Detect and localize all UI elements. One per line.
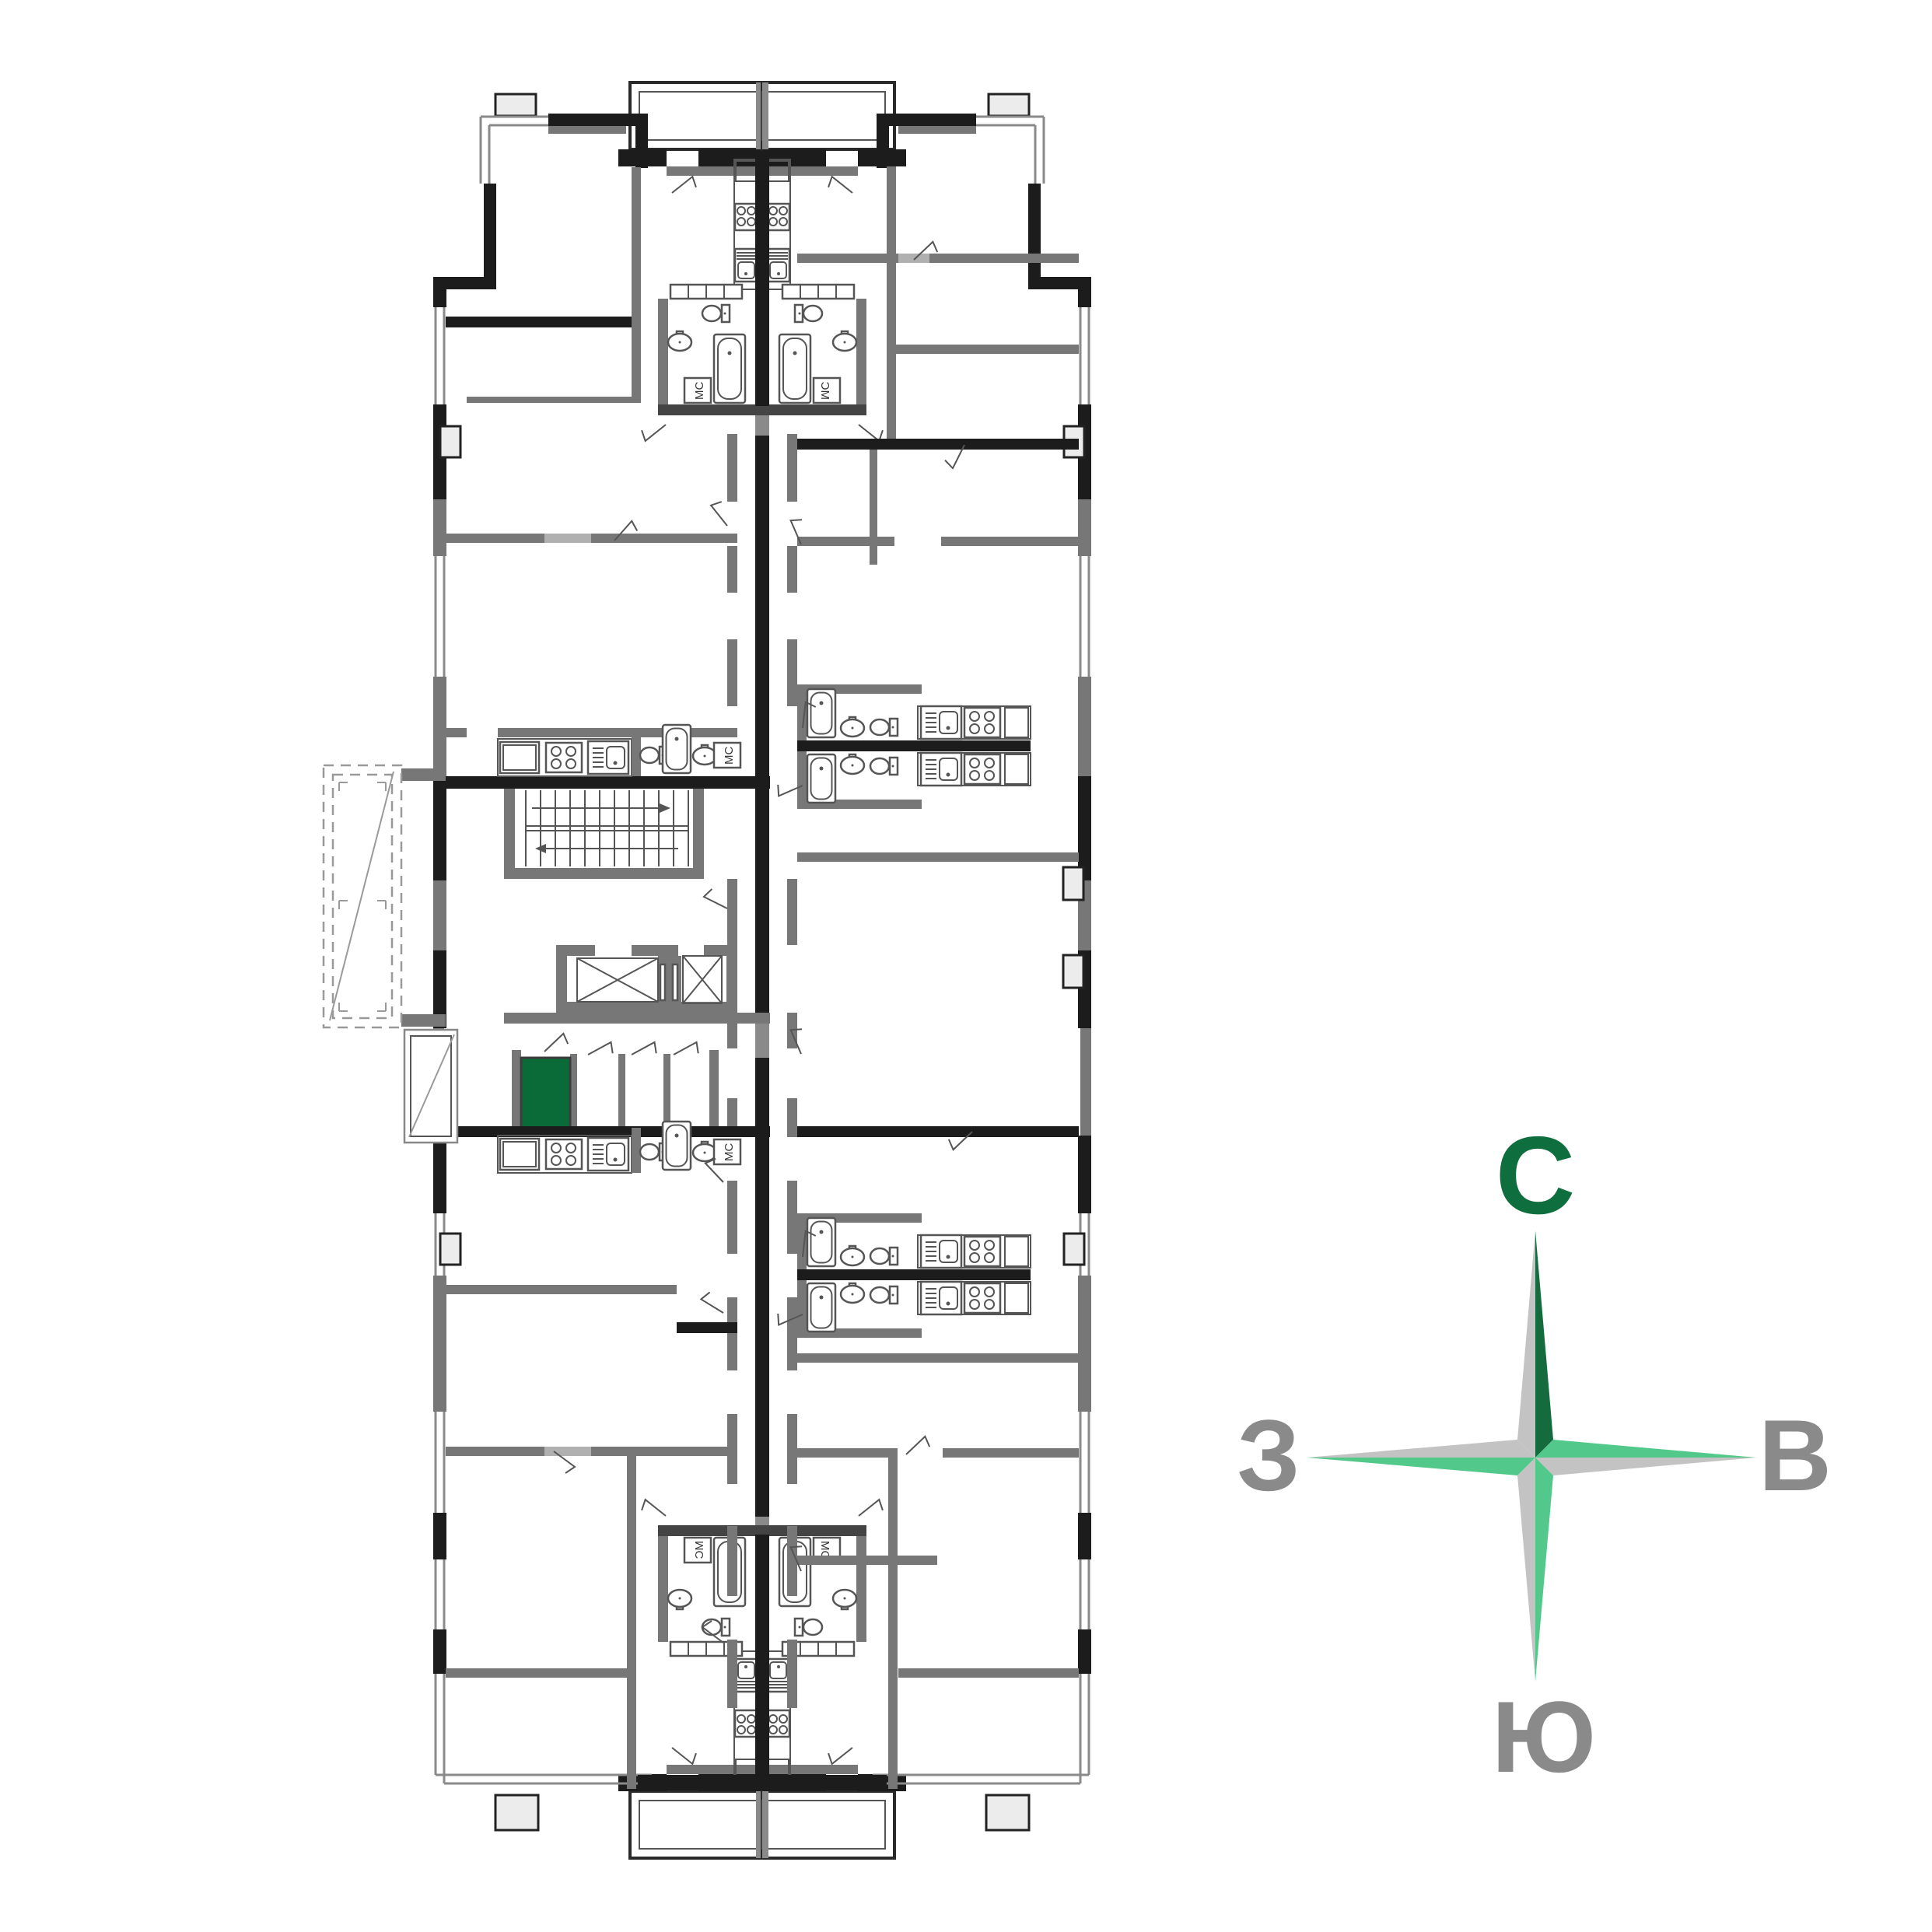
- compass-north-label: С: [1496, 1114, 1576, 1237]
- compass-rose: С З В Ю: [1237, 1114, 1832, 1794]
- highlighted-unit[interactable]: [521, 1058, 570, 1133]
- compass-south-east-facet: [1535, 1458, 1553, 1682]
- compass-west-top-facet: [1307, 1440, 1535, 1458]
- compass-south-west-facet: [1517, 1458, 1535, 1682]
- compass-east-bottom-facet: [1535, 1458, 1756, 1475]
- compass-north-east-facet: [1535, 1230, 1553, 1458]
- storage-row: [438, 1031, 770, 1137]
- exterior-slab: [1063, 867, 1083, 900]
- exterior-slab: [1063, 955, 1083, 988]
- elevator-shafts: [504, 945, 770, 1024]
- floor-plan-page: МС: [0, 0, 1932, 1932]
- balcony-open: [404, 1030, 457, 1143]
- compass-west-bottom-facet: [1307, 1458, 1535, 1475]
- compass-south-label: Ю: [1492, 1680, 1596, 1794]
- compass-east-label: В: [1759, 1398, 1832, 1512]
- compass-east-top-facet: [1535, 1440, 1756, 1458]
- floor-plan: [324, 82, 1091, 1858]
- compass-north-west-facet: [1517, 1230, 1535, 1458]
- stairwell: [438, 776, 770, 879]
- compass-west-label: З: [1237, 1398, 1300, 1512]
